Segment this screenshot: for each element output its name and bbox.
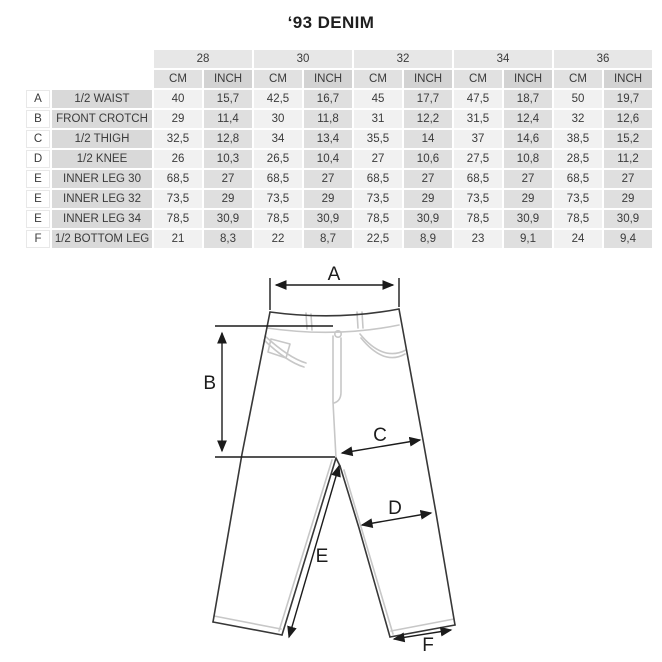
value-cell: 27 [404, 170, 452, 188]
row-letter: C [26, 130, 50, 148]
size-col-header: 32 [354, 50, 452, 68]
value-cell: 34 [254, 130, 302, 148]
value-cell: 30,9 [504, 210, 552, 228]
value-cell: 31 [354, 110, 402, 128]
table-row: F 1/2 BOTTOM LEG 21 8,3 22 8,7 22,5 8,9 … [26, 230, 652, 248]
right-inseam-stitch [344, 470, 393, 634]
value-cell: 27 [504, 170, 552, 188]
value-cell: 30,9 [204, 210, 252, 228]
unit-col-header-cm: CM [554, 70, 602, 88]
value-cell: 78,5 [454, 210, 502, 228]
value-cell: 28,5 [554, 150, 602, 168]
value-cell: 8,3 [204, 230, 252, 248]
value-cell: 11,8 [304, 110, 352, 128]
row-letter: B [26, 110, 50, 128]
unit-col-header-inch: INCH [604, 70, 652, 88]
value-cell: 78,5 [354, 210, 402, 228]
unit-col-header-cm: CM [154, 70, 202, 88]
value-cell: 27 [354, 150, 402, 168]
table-row: D 1/2 KNEE 26 10,3 26,5 10,4 27 10,6 27,… [26, 150, 652, 168]
size-col-header: 30 [254, 50, 352, 68]
row-label: 1/2 THIGH [52, 130, 152, 148]
value-cell: 21 [154, 230, 202, 248]
value-cell: 12,4 [504, 110, 552, 128]
value-cell: 24 [554, 230, 602, 248]
value-cell: 73,5 [554, 190, 602, 208]
value-cell: 32,5 [154, 130, 202, 148]
value-cell: 14,6 [504, 130, 552, 148]
unit-col-header-inch: INCH [404, 70, 452, 88]
value-cell: 73,5 [154, 190, 202, 208]
value-cell: 38,5 [554, 130, 602, 148]
value-cell: 11,2 [604, 150, 652, 168]
value-cell: 68,5 [454, 170, 502, 188]
left-inseam [282, 458, 340, 635]
measure-b-label: B [203, 373, 216, 394]
row-letter: F [26, 230, 50, 248]
value-cell: 10,4 [304, 150, 352, 168]
value-cell: 12,6 [604, 110, 652, 128]
corner-blank [26, 50, 152, 68]
row-letter: A [26, 90, 50, 108]
row-letter: E [26, 190, 50, 208]
table-row: E INNER LEG 32 73,5 29 73,5 29 73,5 29 7… [26, 190, 652, 208]
value-cell: 10,3 [204, 150, 252, 168]
value-cell: 8,7 [304, 230, 352, 248]
value-cell: 50 [554, 90, 602, 108]
value-cell: 30,9 [404, 210, 452, 228]
right-outseam [399, 309, 455, 625]
right-hem-stitch [391, 619, 454, 631]
table-row: E INNER LEG 34 78,5 30,9 78,5 30,9 78,5 … [26, 210, 652, 228]
value-cell: 27 [604, 170, 652, 188]
value-cell: 35,5 [354, 130, 402, 148]
value-cell: 73,5 [454, 190, 502, 208]
left-hem-stitch [214, 616, 281, 629]
unit-col-header-inch: INCH [204, 70, 252, 88]
value-cell: 32 [554, 110, 602, 128]
value-cell: 30,9 [304, 210, 352, 228]
row-label: 1/2 WAIST [52, 90, 152, 108]
right-inseam [340, 466, 390, 637]
value-cell: 27 [304, 170, 352, 188]
value-cell: 23 [454, 230, 502, 248]
unit-col-header-cm: CM [454, 70, 502, 88]
row-label: INNER LEG 30 [52, 170, 152, 188]
value-cell: 68,5 [154, 170, 202, 188]
value-cell: 26 [154, 150, 202, 168]
value-cell: 37 [454, 130, 502, 148]
value-cell: 42,5 [254, 90, 302, 108]
unit-col-header-inch: INCH [304, 70, 352, 88]
measure-e-label: E [316, 546, 329, 567]
jeans-diagram: A B C D E F [0, 250, 662, 662]
value-cell: 73,5 [354, 190, 402, 208]
page-title: ‘93 DENIM [0, 0, 662, 37]
value-cell: 17,7 [404, 90, 452, 108]
fly-j-stitch [334, 338, 341, 403]
value-cell: 9,4 [604, 230, 652, 248]
value-cell: 78,5 [254, 210, 302, 228]
value-cell: 27 [204, 170, 252, 188]
value-cell: 78,5 [154, 210, 202, 228]
value-cell: 27,5 [454, 150, 502, 168]
value-cell: 10,8 [504, 150, 552, 168]
unit-col-header-cm: CM [354, 70, 402, 88]
row-letter: E [26, 170, 50, 188]
value-cell: 68,5 [554, 170, 602, 188]
right-pocket-curve [360, 334, 406, 358]
value-cell: 29 [404, 190, 452, 208]
value-cell: 12,8 [204, 130, 252, 148]
table-row: C 1/2 THIGH 32,5 12,8 34 13,4 35,5 14 37… [26, 130, 652, 148]
row-label: INNER LEG 34 [52, 210, 152, 228]
size-col-header: 36 [554, 50, 652, 68]
value-cell: 16,7 [304, 90, 352, 108]
value-cell: 29 [204, 190, 252, 208]
measure-e-arrow [289, 466, 339, 637]
value-cell: 30 [254, 110, 302, 128]
value-cell: 29 [504, 190, 552, 208]
size-col-header: 28 [154, 50, 252, 68]
size-table: 28 30 32 34 36 CM INCH CM INCH CM INCH C… [24, 48, 654, 250]
value-cell: 73,5 [254, 190, 302, 208]
value-cell: 22,5 [354, 230, 402, 248]
value-cell: 12,2 [404, 110, 452, 128]
jeans-outline [213, 309, 455, 637]
value-cell: 78,5 [554, 210, 602, 228]
value-cell: 10,6 [404, 150, 452, 168]
size-col-header: 34 [454, 50, 552, 68]
measure-a-label: A [328, 264, 341, 285]
value-cell: 15,2 [604, 130, 652, 148]
waist-top-edge [270, 309, 399, 316]
unit-col-header-inch: INCH [504, 70, 552, 88]
value-cell: 14 [404, 130, 452, 148]
value-cell: 11,4 [204, 110, 252, 128]
measurement-labels: A B C D E F [203, 264, 433, 656]
value-cell: 15,7 [204, 90, 252, 108]
measure-c-label: C [373, 425, 387, 446]
row-label: 1/2 BOTTOM LEG [52, 230, 152, 248]
unit-header-row: CM INCH CM INCH CM INCH CM INCH CM INCH [26, 70, 652, 88]
value-cell: 68,5 [254, 170, 302, 188]
left-hem-edge [213, 622, 282, 635]
value-cell: 8,9 [404, 230, 452, 248]
measure-f-label: F [422, 635, 434, 656]
value-cell: 47,5 [454, 90, 502, 108]
value-cell: 9,1 [504, 230, 552, 248]
row-label: FRONT CROTCH [52, 110, 152, 128]
row-label: 1/2 KNEE [52, 150, 152, 168]
unit-col-header-cm: CM [254, 70, 302, 88]
value-cell: 19,7 [604, 90, 652, 108]
fly-center-seam [333, 336, 336, 458]
value-cell: 45 [354, 90, 402, 108]
value-cell: 18,7 [504, 90, 552, 108]
value-cell: 68,5 [354, 170, 402, 188]
row-letter: D [26, 150, 50, 168]
table-row: E INNER LEG 30 68,5 27 68,5 27 68,5 27 6… [26, 170, 652, 188]
jeans-stitch-details [214, 312, 454, 634]
table-row: A 1/2 WAIST 40 15,7 42,5 16,7 45 17,7 47… [26, 90, 652, 108]
value-cell: 31,5 [454, 110, 502, 128]
value-cell: 29 [304, 190, 352, 208]
table-row: B FRONT CROTCH 29 11,4 30 11,8 31 12,2 3… [26, 110, 652, 128]
value-cell: 30,9 [604, 210, 652, 228]
value-cell: 29 [154, 110, 202, 128]
value-cell: 40 [154, 90, 202, 108]
value-cell: 13,4 [304, 130, 352, 148]
value-cell: 26,5 [254, 150, 302, 168]
row-label: INNER LEG 32 [52, 190, 152, 208]
value-cell: 29 [604, 190, 652, 208]
row-letter: E [26, 210, 50, 228]
size-header-row: 28 30 32 34 36 [26, 50, 652, 68]
value-cell: 22 [254, 230, 302, 248]
measure-d-label: D [388, 498, 402, 519]
corner-blank [26, 70, 152, 88]
